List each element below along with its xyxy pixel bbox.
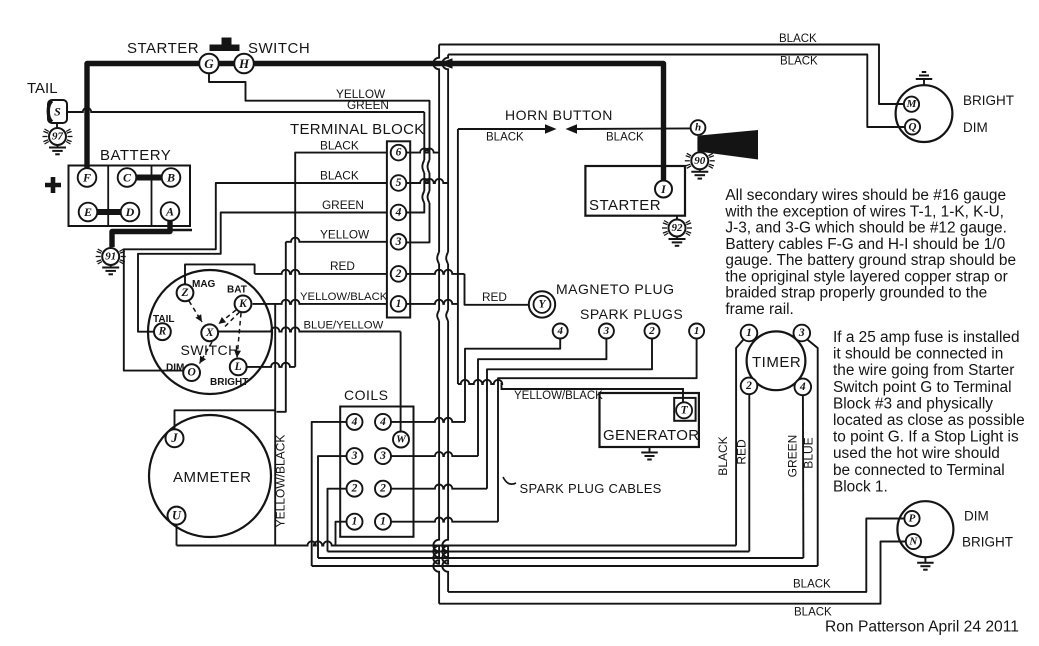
svg-text:RED: RED	[482, 290, 507, 304]
svg-text:1: 1	[396, 298, 402, 310]
svg-text:the opriginal style layered co: the opriginal style layered copper strap…	[725, 268, 1007, 285]
svg-text:BLUE: BLUE	[802, 437, 816, 468]
svg-text:TAIL: TAIL	[27, 80, 58, 97]
svg-text:E: E	[83, 205, 92, 219]
svg-text:located as close as possible: located as close as possible	[833, 412, 1025, 429]
svg-text:DIM: DIM	[964, 509, 989, 524]
svg-text:TERMINAL BLOCK: TERMINAL BLOCK	[290, 121, 425, 138]
svg-text:BRIGHT: BRIGHT	[962, 535, 1013, 550]
svg-text:BRIGHT: BRIGHT	[210, 377, 248, 388]
svg-text:it should be connected in: it should be connected in	[833, 346, 1003, 363]
svg-text:BLACK: BLACK	[606, 132, 644, 144]
svg-text:DIM: DIM	[963, 120, 988, 135]
svg-text:BLACK: BLACK	[779, 33, 817, 45]
svg-text:be connected to Terminal: be connected to Terminal	[833, 462, 1005, 479]
svg-text:90: 90	[694, 155, 706, 167]
svg-text:STARTER: STARTER	[589, 197, 661, 214]
svg-text:97: 97	[52, 131, 64, 143]
svg-text:A: A	[165, 205, 174, 219]
svg-text:SPARK PLUG CABLES: SPARK PLUG CABLES	[520, 481, 662, 496]
svg-text:GREEN: GREEN	[322, 198, 364, 212]
svg-text:All secondary wires should be: All secondary wires should be #16 gauge	[725, 187, 1006, 204]
svg-text:4: 4	[379, 416, 386, 428]
svg-text:N: N	[908, 536, 918, 548]
svg-text:BLACK: BLACK	[794, 607, 832, 619]
svg-text:D: D	[125, 205, 135, 219]
svg-text:BLACK: BLACK	[793, 579, 831, 591]
svg-text:2: 2	[395, 268, 402, 280]
svg-text:2: 2	[351, 483, 358, 495]
svg-text:91: 91	[105, 251, 116, 263]
svg-text:Ron Patterson April 24 2011: Ron Patterson April 24 2011	[825, 619, 1019, 636]
svg-text:1: 1	[746, 327, 752, 339]
svg-text:U: U	[172, 509, 182, 523]
svg-text:frame rail.: frame rail.	[725, 301, 793, 318]
svg-text:R: R	[158, 326, 167, 338]
svg-text:If a 25 amp fuse is installed: If a 25 amp fuse is installed	[833, 329, 1020, 346]
svg-text:GREEN: GREEN	[786, 435, 800, 478]
svg-text:K: K	[238, 298, 248, 310]
svg-text:the wire going from Starter: the wire going from Starter	[833, 362, 1014, 379]
svg-text:3: 3	[379, 450, 386, 462]
svg-text:4: 4	[395, 207, 402, 219]
svg-text:X: X	[205, 327, 214, 339]
svg-text:O: O	[187, 367, 195, 379]
svg-text:4: 4	[799, 381, 806, 393]
svg-text:W: W	[396, 434, 407, 446]
svg-text:GENERATOR: GENERATOR	[603, 427, 699, 444]
svg-text:used the hot wire should: used the hot wire should	[833, 445, 1000, 462]
svg-text:YELLOW/BLACK: YELLOW/BLACK	[300, 291, 388, 303]
svg-text:1: 1	[694, 325, 700, 337]
svg-text:YELLOW/BLACK: YELLOW/BLACK	[274, 435, 288, 528]
svg-text:B: B	[166, 171, 175, 185]
svg-text:gauge. The battery ground stra: gauge. The battery ground strap should b…	[725, 252, 1016, 269]
svg-text:BLUE/YELLOW: BLUE/YELLOW	[304, 320, 384, 332]
svg-text:6: 6	[396, 147, 402, 159]
svg-text:3: 3	[798, 327, 805, 339]
svg-text:BATTERY: BATTERY	[100, 147, 171, 164]
svg-text:MAG: MAG	[192, 279, 216, 290]
svg-text:S: S	[54, 105, 61, 119]
svg-text:COILS: COILS	[344, 387, 389, 403]
svg-text:3: 3	[351, 450, 358, 462]
svg-text:BLACK: BLACK	[320, 169, 359, 183]
svg-text:4: 4	[556, 325, 563, 337]
svg-text:Block #3 and physically: Block #3 and physically	[833, 395, 993, 412]
svg-text:HORN BUTTON: HORN BUTTON	[505, 107, 613, 123]
svg-text:5: 5	[396, 177, 402, 189]
svg-text:Switch point G to Terminal: Switch point G to Terminal	[833, 379, 1012, 396]
svg-text:C: C	[123, 171, 132, 185]
svg-text:G: G	[204, 56, 214, 71]
svg-text:GREEN: GREEN	[347, 98, 389, 112]
svg-text:H: H	[238, 56, 250, 71]
svg-text:L: L	[234, 361, 242, 373]
svg-text:with the exception of wires T-: with the exception of wires T-1, 1-K, K-…	[724, 203, 1004, 220]
svg-text:Battery cables F-G and H-I sho: Battery cables F-G and H-I should be 1/0	[725, 236, 1005, 253]
svg-text:Z: Z	[180, 287, 188, 299]
svg-text:J-3, and 3-G which should be: J-3, and 3-G which should be #12 gauge.	[725, 220, 1007, 237]
svg-text:2: 2	[379, 483, 386, 495]
svg-text:TIMER: TIMER	[752, 354, 801, 371]
svg-text:BLACK: BLACK	[486, 132, 524, 144]
svg-text:MAGNETO PLUG: MAGNETO PLUG	[556, 281, 675, 297]
svg-text:braided strap properly grounde: braided strap properly grounded to the	[725, 285, 987, 302]
svg-text:P: P	[909, 513, 916, 525]
svg-text:SWITCH: SWITCH	[248, 40, 310, 57]
svg-text:RED: RED	[735, 439, 749, 465]
svg-text:Y: Y	[538, 298, 546, 310]
svg-text:2: 2	[745, 380, 752, 392]
svg-text:1: 1	[352, 516, 358, 528]
svg-text:BLACK: BLACK	[780, 56, 818, 68]
svg-text:RED: RED	[330, 259, 355, 273]
svg-text:SPARK PLUGS: SPARK PLUGS	[580, 306, 683, 322]
svg-text:YELLOW: YELLOW	[320, 228, 370, 242]
svg-text:BLACK: BLACK	[716, 436, 730, 475]
svg-text:3: 3	[395, 236, 402, 248]
svg-text:h: h	[695, 122, 701, 134]
svg-text:Block 1.: Block 1.	[833, 478, 888, 495]
svg-text:M: M	[906, 98, 918, 110]
svg-text:3: 3	[603, 325, 610, 337]
svg-text:BAT: BAT	[227, 285, 247, 296]
svg-text:STARTER: STARTER	[127, 40, 199, 57]
svg-text:F: F	[82, 171, 91, 185]
svg-text:DIM: DIM	[166, 363, 184, 374]
svg-text:Q: Q	[909, 121, 917, 133]
svg-text:to point G. If a Stop Light is: to point G. If a Stop Light is	[833, 429, 1019, 446]
svg-text:AMMETER: AMMETER	[173, 469, 252, 486]
svg-text:1: 1	[380, 516, 386, 528]
svg-text:SWITCH: SWITCH	[181, 342, 239, 358]
svg-text:BRIGHT: BRIGHT	[963, 93, 1014, 108]
svg-text:YELLOW/BLACK: YELLOW/BLACK	[514, 390, 603, 402]
svg-text:4: 4	[351, 416, 358, 428]
svg-text:2: 2	[648, 325, 655, 337]
svg-text:92: 92	[672, 222, 684, 234]
svg-text:BLACK: BLACK	[320, 139, 359, 153]
svg-text:J: J	[170, 431, 178, 445]
svg-text:T: T	[681, 404, 689, 416]
